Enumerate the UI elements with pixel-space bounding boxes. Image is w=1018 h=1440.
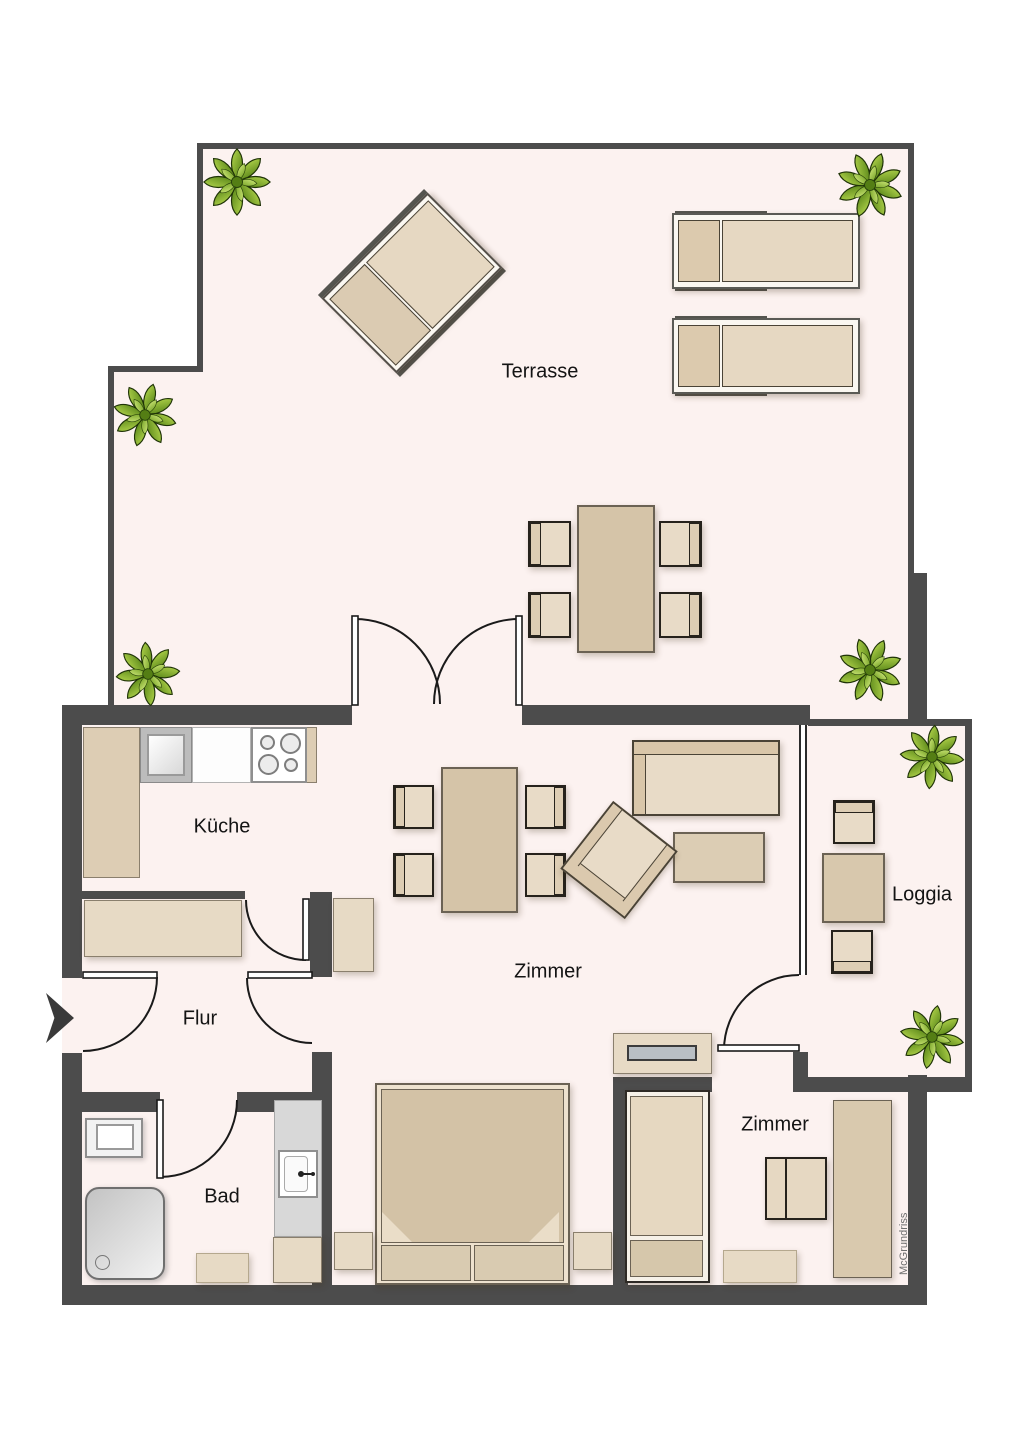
wall <box>908 143 914 573</box>
wall <box>62 1053 82 1305</box>
wall <box>62 705 352 725</box>
wall <box>793 1052 808 1077</box>
wardrobe <box>833 1100 892 1278</box>
burner-icon <box>280 733 301 754</box>
dining-chair <box>525 853 566 897</box>
wall <box>197 143 914 149</box>
wall <box>965 719 972 1082</box>
kitchen-stove <box>251 727 307 783</box>
wall <box>62 705 82 978</box>
toilet <box>85 1118 143 1158</box>
wall <box>62 1285 927 1305</box>
wall <box>108 366 114 711</box>
pillow <box>381 1245 471 1281</box>
washbasin <box>278 1150 318 1198</box>
burner-icon <box>284 758 298 772</box>
terrace-chair <box>659 592 702 638</box>
loggia-chair <box>831 930 873 974</box>
room-label-zimmer-bedroom: Zimmer <box>741 1114 809 1137</box>
terrace-table <box>577 505 655 653</box>
dining-chair <box>393 785 434 829</box>
drain-icon <box>95 1255 110 1270</box>
wall <box>310 892 332 977</box>
wall <box>522 705 810 725</box>
dining-chair <box>393 853 434 897</box>
room-label-bad: Bad <box>204 1186 240 1209</box>
room-label-loggia: Loggia <box>892 884 952 907</box>
room-label-zimmer-living: Zimmer <box>514 961 582 984</box>
burner-icon <box>260 735 275 750</box>
terrace-chair <box>659 521 702 567</box>
wall <box>908 1075 927 1305</box>
terrace-chair <box>528 521 571 567</box>
watermark: McGrundriss <box>898 1213 910 1275</box>
dresser <box>765 1157 827 1220</box>
floorplan: Terrasse Küche Flur Bad Zimmer Loggia Zi… <box>0 0 1018 1440</box>
dining-table <box>441 767 518 913</box>
bath-cabinet <box>273 1237 322 1283</box>
kitchen-worktop <box>192 727 251 783</box>
single-bed <box>625 1090 710 1283</box>
kitchen-sink <box>140 727 192 783</box>
wall <box>108 366 203 372</box>
terrace-chair <box>528 592 571 638</box>
wall <box>908 573 927 722</box>
tv-screen <box>627 1045 697 1061</box>
terrace-floor <box>114 370 908 715</box>
sofa <box>632 740 780 816</box>
room-label-kueche: Küche <box>194 816 251 839</box>
double-bed <box>375 1083 570 1285</box>
hall-sideboard <box>84 900 242 957</box>
wall <box>82 1092 160 1112</box>
wall <box>82 891 245 899</box>
nightstand <box>334 1232 373 1270</box>
shelf <box>333 898 374 972</box>
faucet-icon <box>298 1171 304 1177</box>
faucet-icon <box>311 1172 315 1176</box>
burner-icon <box>258 754 279 775</box>
wall <box>793 1077 972 1092</box>
nightstand <box>573 1232 612 1270</box>
loggia-glass-partition <box>799 725 807 975</box>
wall <box>197 143 203 372</box>
sun-lounger <box>672 211 860 291</box>
bath-mat <box>196 1253 249 1283</box>
room-label-flur: Flur <box>183 1008 217 1031</box>
dining-chair <box>525 785 566 829</box>
pillow <box>474 1245 564 1281</box>
loggia-chair <box>833 800 875 844</box>
coffee-table <box>673 832 765 883</box>
kitchen-cabinet <box>83 727 140 878</box>
wall <box>808 719 972 726</box>
tv-sideboard <box>613 1033 712 1074</box>
rug <box>723 1250 797 1283</box>
shower <box>85 1187 165 1280</box>
room-label-terrasse: Terrasse <box>502 361 579 384</box>
sun-lounger <box>672 316 860 396</box>
pillow <box>630 1240 703 1277</box>
loggia-table <box>822 853 885 923</box>
